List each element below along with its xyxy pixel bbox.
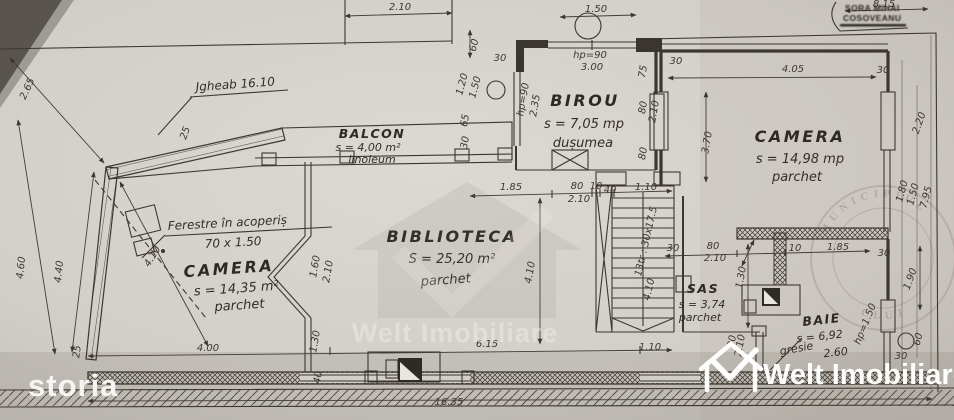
dimension-label: 1.85 — [500, 182, 522, 193]
dimension-label: hp=90 — [573, 50, 607, 61]
room-floor-2: 2.60 — [823, 345, 849, 360]
dimension-label: 25 — [71, 345, 84, 359]
dimension-label: 80 — [571, 181, 584, 192]
room-birou: BIROU s = 7,05 mp dușumea — [544, 91, 624, 151]
welt-logo-text: Welt Imobiliare — [763, 359, 954, 391]
dimension-label: 1.50 — [585, 4, 607, 15]
dimension-label: 10 — [590, 181, 603, 192]
storia-logo: storia — [28, 368, 118, 403]
dimension-label: 10 — [789, 243, 802, 254]
dimension-label: 2.10 — [568, 194, 590, 205]
dimension-label: 4.40 — [53, 260, 66, 283]
dimension-label: 40 — [312, 370, 325, 384]
room-area: s = 14,98 mp — [756, 152, 844, 167]
corner-stamp: SORA MIHAI COSOVEANU — [840, 3, 906, 27]
dimension-label: 30 — [670, 56, 683, 67]
stamp-line2: COSOVEANU — [843, 13, 901, 23]
dimension-label: 4.05 — [782, 64, 804, 75]
room-area: s = 3,74 — [679, 298, 725, 311]
dimension-label: 16.35 — [435, 397, 464, 408]
dimension-label: 80 — [707, 241, 720, 252]
dimension-label: 30 — [459, 135, 472, 149]
dimension-label: 1.85 — [827, 242, 849, 253]
dimension-label: 1.10 — [639, 342, 661, 353]
dimension-label: 65 — [459, 113, 472, 127]
room-name: CAMERA — [755, 127, 846, 146]
ferestre-note-line2: 70 x 1.50 — [204, 234, 262, 251]
dimension-label: 30 — [667, 243, 680, 254]
dimension-label: 4.00 — [197, 343, 219, 354]
room-name: BIROU — [550, 91, 620, 110]
dimension-label: 1.10 — [635, 182, 657, 193]
room-floor: parchet — [678, 311, 722, 324]
stamp-line1: SORA MIHAI — [845, 3, 900, 13]
dimension-label: 2.10 — [389, 2, 411, 13]
room-floor: linoleum — [348, 153, 395, 166]
room-floor: parchet — [771, 170, 823, 185]
dimension-label: 30 — [494, 53, 507, 64]
dimension-label: 3.00 — [581, 62, 603, 73]
dimension-label: 75 — [637, 64, 650, 78]
room-name: SAS — [687, 281, 719, 296]
dimension-label: 80 — [637, 146, 650, 160]
dimension-label: 30 — [878, 248, 891, 259]
watermark-text: Welt Imobiliare — [352, 318, 559, 348]
room-name: BALCON — [339, 126, 405, 141]
room-area: s = 7,05 mp — [544, 117, 624, 132]
dimension-label: 2.10 — [704, 253, 726, 264]
room-floor: dușumea — [553, 136, 613, 151]
floor-plan: MUNICIPIUL CLUJ — [0, 0, 954, 420]
floorplan-photo: MUNICIPIUL CLUJ — [0, 0, 954, 420]
dimension-label: 4.60 — [15, 256, 28, 279]
dimension-label: 40 — [604, 185, 617, 196]
dimension-label: 30 — [877, 65, 890, 76]
